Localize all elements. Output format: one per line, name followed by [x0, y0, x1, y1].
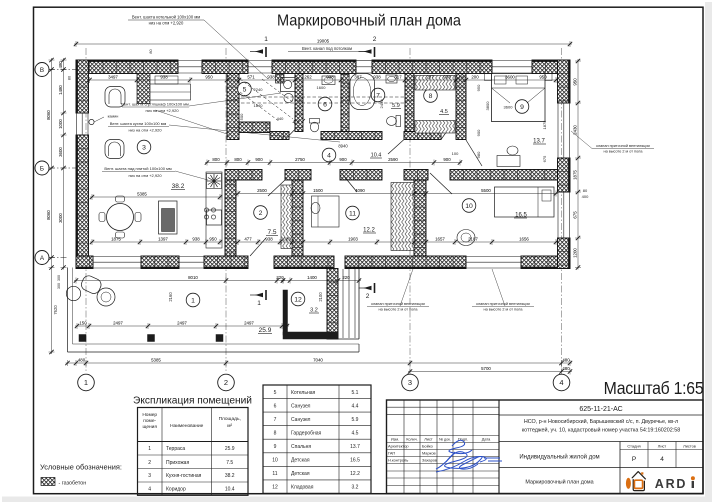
svg-text:900: 900 [255, 157, 263, 162]
svg-text:500: 500 [239, 113, 244, 120]
svg-text:Маркировочный план дома: Маркировочный план дома [525, 479, 593, 486]
svg-text:Терраса: Терраса [166, 446, 185, 452]
svg-text:400: 400 [582, 194, 589, 199]
svg-text:2430: 2430 [573, 125, 578, 135]
svg-text:12: 12 [294, 296, 302, 303]
svg-text:6: 6 [323, 101, 327, 108]
svg-text:Р: Р [632, 456, 636, 463]
svg-text:Захаров: Захаров [422, 458, 437, 463]
svg-text:950: 950 [539, 75, 547, 80]
svg-text:25.9: 25.9 [225, 446, 235, 452]
svg-text:3800: 3800 [485, 101, 490, 111]
svg-text:Наименование: Наименование [170, 423, 204, 429]
svg-text:12: 12 [272, 485, 278, 491]
svg-text:низ на отм +2,920: низ на отм +2,920 [145, 108, 179, 113]
svg-text:8010: 8010 [188, 275, 198, 280]
svg-text:480: 480 [562, 358, 570, 363]
svg-text:Маркировочный план дома: Маркировочный план дома [277, 12, 462, 30]
svg-text:200: 200 [459, 75, 466, 80]
svg-text:938: 938 [267, 75, 275, 80]
svg-text:7: 7 [376, 92, 380, 99]
svg-text:2497: 2497 [244, 321, 254, 326]
svg-text:38.2: 38.2 [225, 473, 235, 479]
svg-text:камин: камин [108, 115, 119, 119]
svg-text:Бойко: Бойко [422, 444, 433, 449]
svg-text:8940: 8940 [338, 144, 348, 149]
svg-text:5: 5 [243, 86, 247, 93]
svg-text:Прихожая: Прихожая [166, 460, 189, 466]
svg-text:ARD: ARD [655, 477, 687, 491]
svg-text:2590: 2590 [388, 157, 398, 162]
svg-text:480: 480 [78, 358, 86, 363]
svg-text:9: 9 [274, 444, 277, 450]
svg-text:4.4: 4.4 [293, 120, 300, 126]
svg-text:440: 440 [277, 116, 284, 121]
svg-text:1656: 1656 [519, 237, 529, 242]
svg-text:19005: 19005 [317, 39, 330, 44]
svg-text:1: 1 [257, 300, 261, 307]
svg-text:5.1: 5.1 [352, 390, 359, 396]
svg-text:938: 938 [160, 75, 168, 80]
svg-text:Санузел: Санузел [291, 403, 311, 409]
svg-text:Архитектор: Архитектор [388, 444, 409, 449]
svg-text:13.7: 13.7 [350, 444, 360, 450]
svg-text:Условные обозначения:: Условные обозначения: [40, 463, 122, 472]
svg-text:2: 2 [224, 378, 228, 387]
svg-text:8060: 8060 [46, 210, 51, 220]
svg-text:1000: 1000 [58, 119, 63, 129]
svg-text:1875: 1875 [573, 170, 578, 180]
svg-text:3000: 3000 [58, 213, 63, 223]
svg-text:В: В [40, 67, 44, 74]
svg-text:2750: 2750 [295, 157, 305, 162]
svg-text:480: 480 [58, 61, 63, 69]
svg-text:3497: 3497 [108, 75, 118, 80]
svg-text:Колич.: Колич. [406, 437, 417, 441]
svg-text:4.5: 4.5 [440, 109, 448, 115]
svg-text:1480: 1480 [58, 85, 63, 95]
svg-text:Кухня-гостиная: Кухня-гостиная [166, 473, 202, 479]
svg-text:Котельная: Котельная [291, 390, 315, 396]
svg-text:2: 2 [259, 210, 263, 217]
svg-text:Марков: Марков [422, 451, 436, 456]
svg-text:950: 950 [209, 237, 217, 242]
svg-text:38.2: 38.2 [172, 183, 185, 190]
svg-text:900: 900 [443, 157, 451, 162]
svg-text:80: 80 [149, 49, 153, 53]
svg-text:2187: 2187 [468, 237, 478, 242]
svg-text:938: 938 [265, 237, 273, 242]
svg-text:5385: 5385 [151, 358, 161, 363]
svg-text:1875: 1875 [111, 237, 121, 242]
svg-text:Гардеробная: Гардеробная [291, 430, 322, 436]
svg-text:938: 938 [192, 237, 200, 242]
svg-text:300: 300 [57, 283, 61, 289]
svg-text:7620: 7620 [53, 305, 58, 315]
svg-text:1600: 1600 [317, 85, 327, 90]
svg-text:Вент. шахта котельной 100х100: Вент. шахта котельной 100х100 мм [132, 15, 200, 20]
svg-text:10.4: 10.4 [225, 487, 235, 493]
svg-text:7.5: 7.5 [267, 229, 276, 236]
svg-text:на высоте 2 м от пола: на высоте 2 м от пола [379, 308, 419, 312]
svg-text:Детская: Детская [291, 458, 310, 464]
svg-text:5.9: 5.9 [392, 103, 400, 109]
svg-text:7: 7 [274, 417, 277, 423]
svg-text:Н.контроль: Н.контроль [388, 458, 408, 463]
svg-text:2500: 2500 [257, 188, 267, 193]
svg-text:220: 220 [342, 275, 350, 280]
svg-text:950: 950 [476, 84, 481, 91]
svg-text:3: 3 [148, 473, 151, 479]
svg-text:Листов: Листов [683, 443, 696, 448]
svg-text:3.2: 3.2 [310, 308, 318, 314]
svg-text:1085: 1085 [281, 237, 291, 242]
svg-text:Стадия: Стадия [627, 443, 640, 448]
svg-text:Санузел: Санузел [291, 417, 311, 423]
svg-text:12.2: 12.2 [363, 228, 375, 234]
svg-text:2100: 2100 [318, 292, 323, 302]
svg-text:низ на отм +2,920: низ на отм +2,920 [128, 173, 162, 178]
svg-text:938: 938 [326, 75, 334, 80]
svg-text:8: 8 [429, 93, 433, 100]
svg-text:4: 4 [148, 487, 151, 493]
svg-text:щения: щения [142, 425, 157, 430]
svg-text:262: 262 [304, 75, 312, 80]
svg-text:80: 80 [583, 188, 588, 193]
svg-text:Лист: Лист [424, 436, 433, 441]
svg-text:25.9: 25.9 [259, 327, 272, 334]
svg-text:4.5: 4.5 [352, 430, 359, 436]
svg-text:675: 675 [573, 211, 578, 219]
svg-text:Коридор: Коридор [166, 487, 186, 493]
svg-text:480: 480 [562, 366, 570, 371]
svg-text:1903: 1903 [348, 237, 358, 242]
svg-text:200: 200 [471, 75, 479, 80]
svg-text:4: 4 [660, 456, 664, 463]
svg-text:Кладовая: Кладовая [291, 485, 314, 491]
svg-text:на высоте 2 м от пола: на высоте 2 м от пола [484, 308, 524, 312]
svg-text:80: 80 [68, 76, 72, 80]
svg-text:10: 10 [465, 203, 473, 210]
svg-text:9: 9 [520, 104, 524, 111]
svg-text:5500: 5500 [481, 188, 491, 193]
svg-text:16.5: 16.5 [515, 213, 527, 219]
svg-text:№ док.: № док. [439, 437, 451, 441]
svg-text:- газобетон: - газобетон [59, 481, 87, 487]
svg-text:3.2: 3.2 [352, 485, 359, 491]
svg-text:950: 950 [573, 78, 578, 86]
svg-text:571: 571 [247, 75, 255, 80]
svg-text:низ на отм +2,920: низ на отм +2,920 [128, 128, 162, 133]
svg-text:287: 287 [426, 75, 434, 80]
svg-text:800: 800 [234, 157, 242, 162]
svg-text:8060: 8060 [46, 110, 51, 120]
svg-text:1: 1 [191, 297, 195, 304]
svg-text:16.5: 16.5 [350, 458, 360, 464]
svg-text:7040: 7040 [313, 358, 323, 363]
svg-text:5: 5 [274, 390, 277, 396]
svg-text:7.5: 7.5 [226, 460, 233, 466]
svg-text:800: 800 [212, 157, 220, 162]
svg-text:477: 477 [244, 237, 252, 242]
svg-text:4: 4 [327, 152, 331, 159]
svg-text:Спальня: Спальня [291, 444, 311, 450]
svg-text:100: 100 [452, 151, 459, 156]
svg-text:Б: Б [40, 166, 44, 173]
svg-text:8: 8 [274, 430, 277, 436]
svg-text:2497: 2497 [177, 321, 187, 326]
svg-text:3600: 3600 [505, 75, 515, 80]
svg-text:Масштаб 1:65: Масштаб 1:65 [604, 378, 704, 398]
svg-text:11: 11 [349, 210, 356, 217]
svg-text:1875: 1875 [542, 120, 547, 130]
svg-text:Индивидуальный жилой дом: Индивидуальный жилой дом [519, 454, 599, 461]
svg-text:Экспликация помещений: Экспликация помещений [133, 395, 252, 406]
svg-text:Лист: Лист [658, 443, 667, 448]
svg-text:900: 900 [339, 157, 347, 162]
svg-text:2: 2 [366, 293, 370, 300]
svg-text:13.7: 13.7 [533, 139, 545, 145]
svg-text:м²: м² [227, 423, 232, 429]
svg-text:Изм.: Изм. [391, 436, 399, 441]
svg-text:4: 4 [559, 378, 563, 387]
svg-text:938: 938 [373, 75, 381, 80]
svg-text:3: 3 [408, 378, 412, 387]
svg-text:клапан приточной вентиляции: клапан приточной вентиляции [371, 302, 424, 306]
svg-text:675: 675 [542, 155, 547, 162]
svg-text:коттеджей, уч. 10, кадастровый: коттеджей, уч. 10, кадастровый номер уча… [522, 427, 681, 434]
svg-text:2160: 2160 [168, 292, 173, 302]
svg-text:2: 2 [373, 36, 377, 43]
svg-text:300: 300 [57, 275, 61, 281]
svg-text:1: 1 [84, 378, 88, 387]
svg-text:Детская: Детская [291, 471, 310, 477]
svg-text:низ на отм +2,920: низ на отм +2,920 [149, 21, 184, 26]
svg-text:3600: 3600 [58, 147, 63, 157]
svg-text:2: 2 [148, 460, 151, 466]
svg-text:980: 980 [476, 151, 481, 158]
svg-text:Вент. канал под потолком: Вент. канал под потолком [302, 46, 352, 51]
svg-text:6: 6 [274, 403, 277, 409]
svg-text:387: 387 [354, 75, 362, 80]
svg-text:1397: 1397 [158, 237, 168, 242]
svg-text:4.4: 4.4 [352, 403, 359, 409]
svg-text:10.4: 10.4 [371, 153, 382, 159]
svg-text:10: 10 [272, 458, 278, 464]
svg-text:625-11-21-АС: 625-11-21-АС [579, 406, 622, 413]
svg-text:950: 950 [205, 75, 213, 80]
svg-text:Площадь,: Площадь, [219, 416, 241, 422]
svg-text:12.2: 12.2 [350, 471, 360, 477]
svg-text:150: 150 [79, 321, 87, 326]
svg-text:клапан приточной вентиляции: клапан приточной вентиляции [476, 302, 529, 306]
svg-text:1500: 1500 [313, 188, 323, 193]
svg-text:1: 1 [148, 446, 151, 452]
svg-text:Вент. шахта с/у,гл/шкаф 100х10: Вент. шахта с/у,гл/шкаф 100х100 мм [121, 102, 189, 107]
svg-text:900: 900 [476, 129, 481, 136]
svg-text:617: 617 [394, 75, 402, 80]
svg-text:5700: 5700 [481, 366, 491, 371]
svg-text:3600: 3600 [504, 105, 514, 110]
svg-text:1200: 1200 [573, 248, 578, 258]
svg-text:на высоте 2 м от пола: на высоте 2 м от пола [604, 150, 644, 154]
svg-text:Номер: Номер [142, 412, 157, 418]
svg-text:1840: 1840 [254, 103, 264, 108]
svg-text:поме-: поме- [143, 419, 156, 424]
svg-text:1657: 1657 [435, 237, 445, 242]
svg-text:5.9: 5.9 [352, 417, 359, 423]
svg-text:2430: 2430 [379, 99, 384, 109]
svg-text:11: 11 [272, 471, 277, 477]
svg-text:Вент. шахта над плитой 100х100: Вент. шахта над плитой 100х100 мм [104, 166, 171, 171]
svg-text:НСО, р-н Новосибирский, Барыше: НСО, р-н Новосибирский, Барышевский с/с,… [524, 418, 678, 425]
svg-text:5385: 5385 [137, 192, 147, 197]
svg-text:клапан приточной вентиляции: клапан приточной вентиляции [596, 144, 649, 148]
svg-text:Вент. шахта кухни 100х100 мм: Вент. шахта кухни 100х100 мм [110, 121, 167, 126]
svg-text:4090: 4090 [355, 188, 365, 193]
svg-text:938: 938 [443, 75, 451, 80]
svg-text:Дата: Дата [482, 436, 491, 441]
svg-text:1400: 1400 [307, 275, 317, 280]
svg-text:2240: 2240 [254, 87, 264, 92]
svg-text:3: 3 [142, 144, 146, 151]
svg-text:1: 1 [264, 36, 268, 43]
svg-text:2497: 2497 [113, 321, 123, 326]
svg-text:ГАП: ГАП [388, 451, 395, 456]
